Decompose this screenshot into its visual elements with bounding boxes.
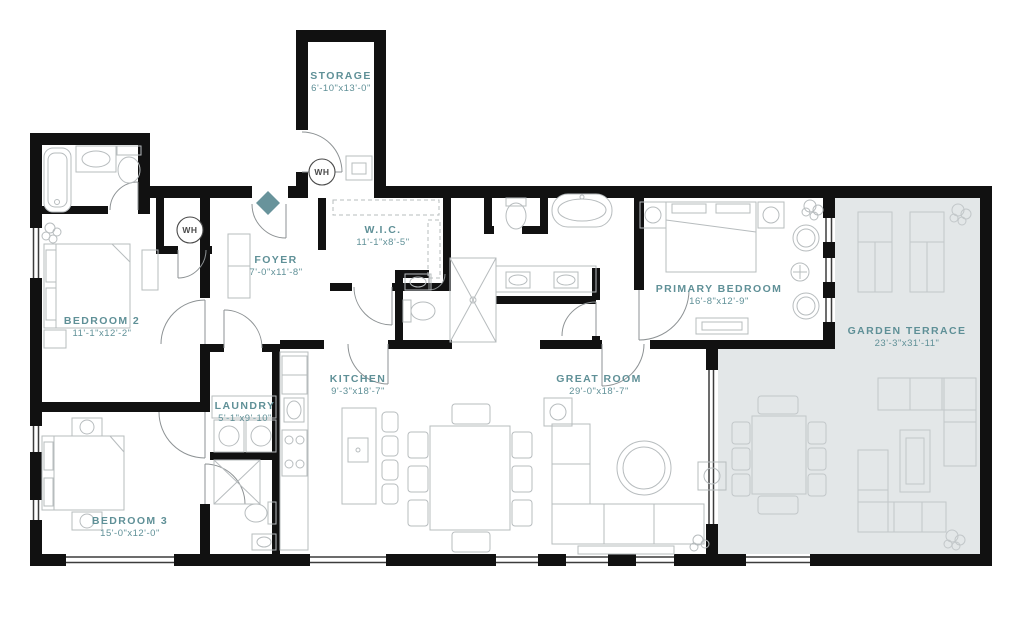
primary-bath-fixtures bbox=[450, 194, 612, 342]
primary-bedroom-fixtures bbox=[640, 200, 823, 334]
great-room-fixtures bbox=[408, 398, 726, 554]
entry-diamond-icon bbox=[256, 191, 280, 215]
foyer-fixtures bbox=[228, 234, 250, 298]
bedroom2-fixtures bbox=[42, 223, 158, 348]
bath2-fixtures bbox=[403, 274, 435, 322]
floorplan-drawing: WH WH bbox=[0, 0, 1024, 618]
wh-label-storage: WH bbox=[314, 167, 329, 177]
wic-fixtures bbox=[333, 200, 440, 278]
kitchen-fixtures bbox=[280, 352, 398, 550]
bedroom3-fixtures bbox=[42, 418, 124, 530]
wh-closet-fixtures: WH bbox=[177, 217, 203, 243]
wh-label-closet: WH bbox=[182, 225, 197, 235]
floor-plan: WH WH bbox=[0, 0, 1024, 618]
terrace-area bbox=[718, 198, 980, 554]
laundry-fixtures bbox=[212, 396, 276, 550]
bath1-fixtures bbox=[44, 146, 141, 212]
